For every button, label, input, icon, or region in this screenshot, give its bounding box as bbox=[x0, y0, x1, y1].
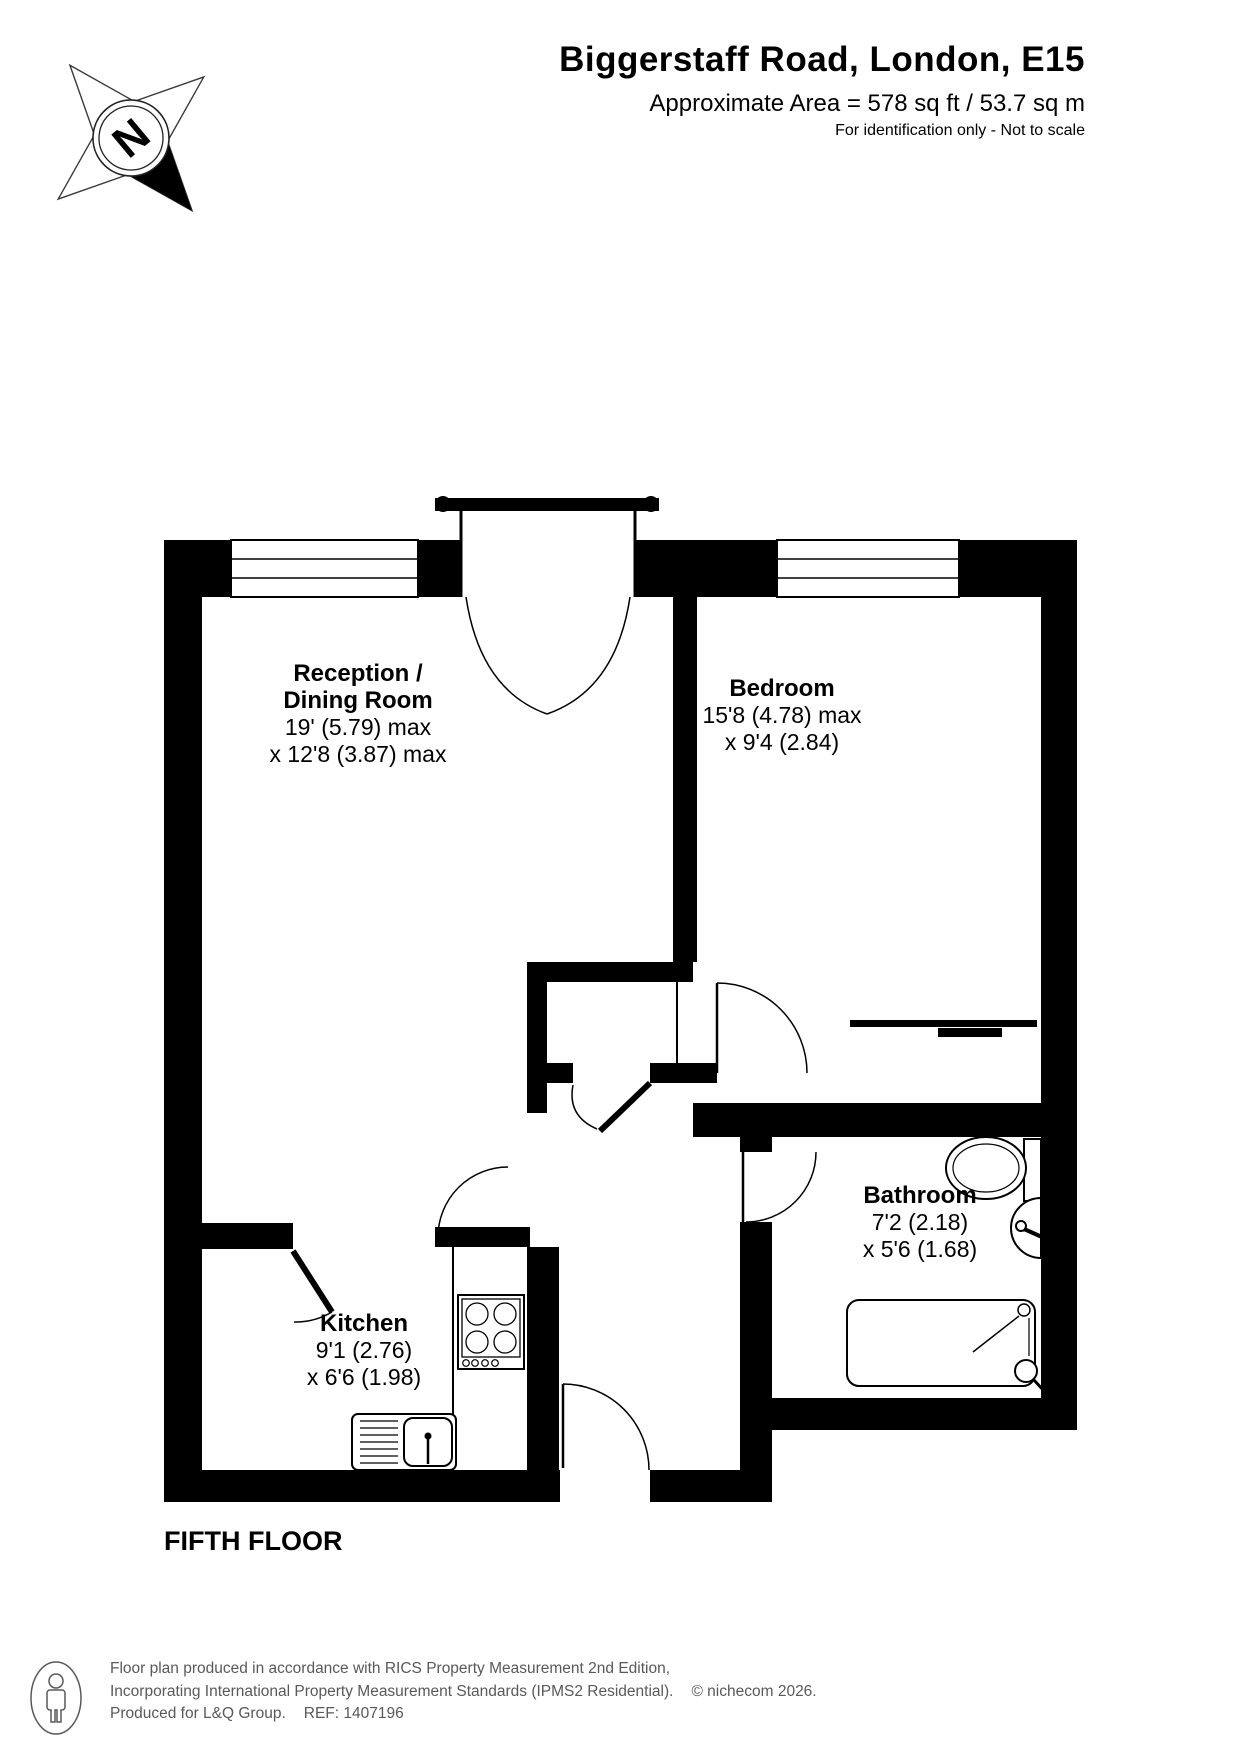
basin-icon bbox=[1011, 1198, 1042, 1258]
kitchen-sink-icon bbox=[352, 1414, 456, 1470]
kitchen-label: Kitchen bbox=[320, 1310, 408, 1337]
bedroom-dim1: 15'8 (4.78) max bbox=[702, 702, 862, 728]
kitchen-dim1: 9'1 (2.76) bbox=[316, 1337, 412, 1363]
wall-segment bbox=[635, 540, 777, 597]
footer-text: Floor plan produced in accordance with R… bbox=[110, 1658, 817, 1726]
wall-segment bbox=[740, 1137, 772, 1152]
wall-segment bbox=[527, 1247, 559, 1470]
bedroom-fitment-bar bbox=[850, 1020, 1037, 1027]
wall-segment bbox=[164, 1223, 293, 1249]
bedroom-label: Bedroom bbox=[729, 675, 834, 702]
kitchen-door-right bbox=[438, 1167, 508, 1237]
wall-segment bbox=[164, 540, 202, 1502]
wall-segment bbox=[435, 1227, 530, 1247]
wall-segment bbox=[527, 982, 547, 1113]
floor-plan: N bbox=[0, 0, 1241, 1755]
floorplan-page: Biggerstaff Road, London, E15 Approximat… bbox=[0, 0, 1241, 1755]
wall-segment bbox=[650, 1470, 772, 1502]
wall-segment bbox=[693, 1103, 1077, 1137]
footer-line-2: Incorporating International Property Mea… bbox=[110, 1681, 817, 1704]
wall-segment bbox=[418, 540, 461, 597]
compass-rose-icon: N bbox=[0, 4, 265, 272]
footer-line-3: Produced for L&Q Group.REF: 1407196 bbox=[110, 1703, 817, 1726]
footer: Floor plan produced in accordance with R… bbox=[28, 1658, 817, 1740]
bathroom-dim1: 7'2 (2.18) bbox=[872, 1209, 968, 1235]
hob-icon bbox=[458, 1295, 524, 1369]
wall-segment bbox=[650, 1063, 717, 1083]
shower-tray-icon bbox=[847, 1300, 1045, 1392]
reception-label: Reception / bbox=[293, 660, 423, 687]
kitchen-dim2: x 6'6 (1.98) bbox=[307, 1364, 421, 1390]
wall-segment bbox=[740, 1398, 1077, 1430]
closet-door bbox=[572, 1083, 650, 1131]
balcony-french-doors bbox=[435, 496, 659, 714]
bedroom-door bbox=[717, 983, 807, 1073]
person-icon bbox=[28, 1658, 84, 1740]
bedroom-fitment-bar bbox=[938, 1028, 1002, 1037]
bathroom-dim2: x 5'6 (1.68) bbox=[863, 1236, 977, 1262]
copyright: © nichecom 2026. bbox=[691, 1683, 816, 1700]
entrance-door bbox=[563, 1384, 649, 1470]
wall-segment bbox=[1041, 540, 1077, 1430]
wall-segment bbox=[164, 1470, 560, 1502]
reception-label2: Dining Room bbox=[283, 687, 432, 714]
reception-dim1: 19' (5.79) max bbox=[285, 714, 432, 740]
reference-number: REF: 1407196 bbox=[304, 1705, 404, 1722]
bedroom-window bbox=[777, 540, 959, 597]
wall-segment bbox=[527, 1063, 573, 1083]
reception-window bbox=[231, 540, 418, 597]
reception-dim2: x 12'8 (3.87) max bbox=[270, 741, 447, 767]
wall-segment bbox=[740, 1222, 772, 1470]
wall-segment bbox=[164, 540, 231, 597]
bedroom-dim2: x 9'4 (2.84) bbox=[725, 729, 839, 755]
floor-name-label: FIFTH FLOOR bbox=[164, 1526, 342, 1556]
windows bbox=[231, 540, 959, 597]
wall-segment bbox=[673, 597, 697, 962]
footer-line-1: Floor plan produced in accordance with R… bbox=[110, 1658, 817, 1681]
wall-segment bbox=[527, 962, 693, 982]
bathroom-label: Bathroom bbox=[863, 1182, 976, 1209]
bathroom-fixtures bbox=[847, 1137, 1045, 1392]
bathroom-door bbox=[743, 1152, 816, 1222]
